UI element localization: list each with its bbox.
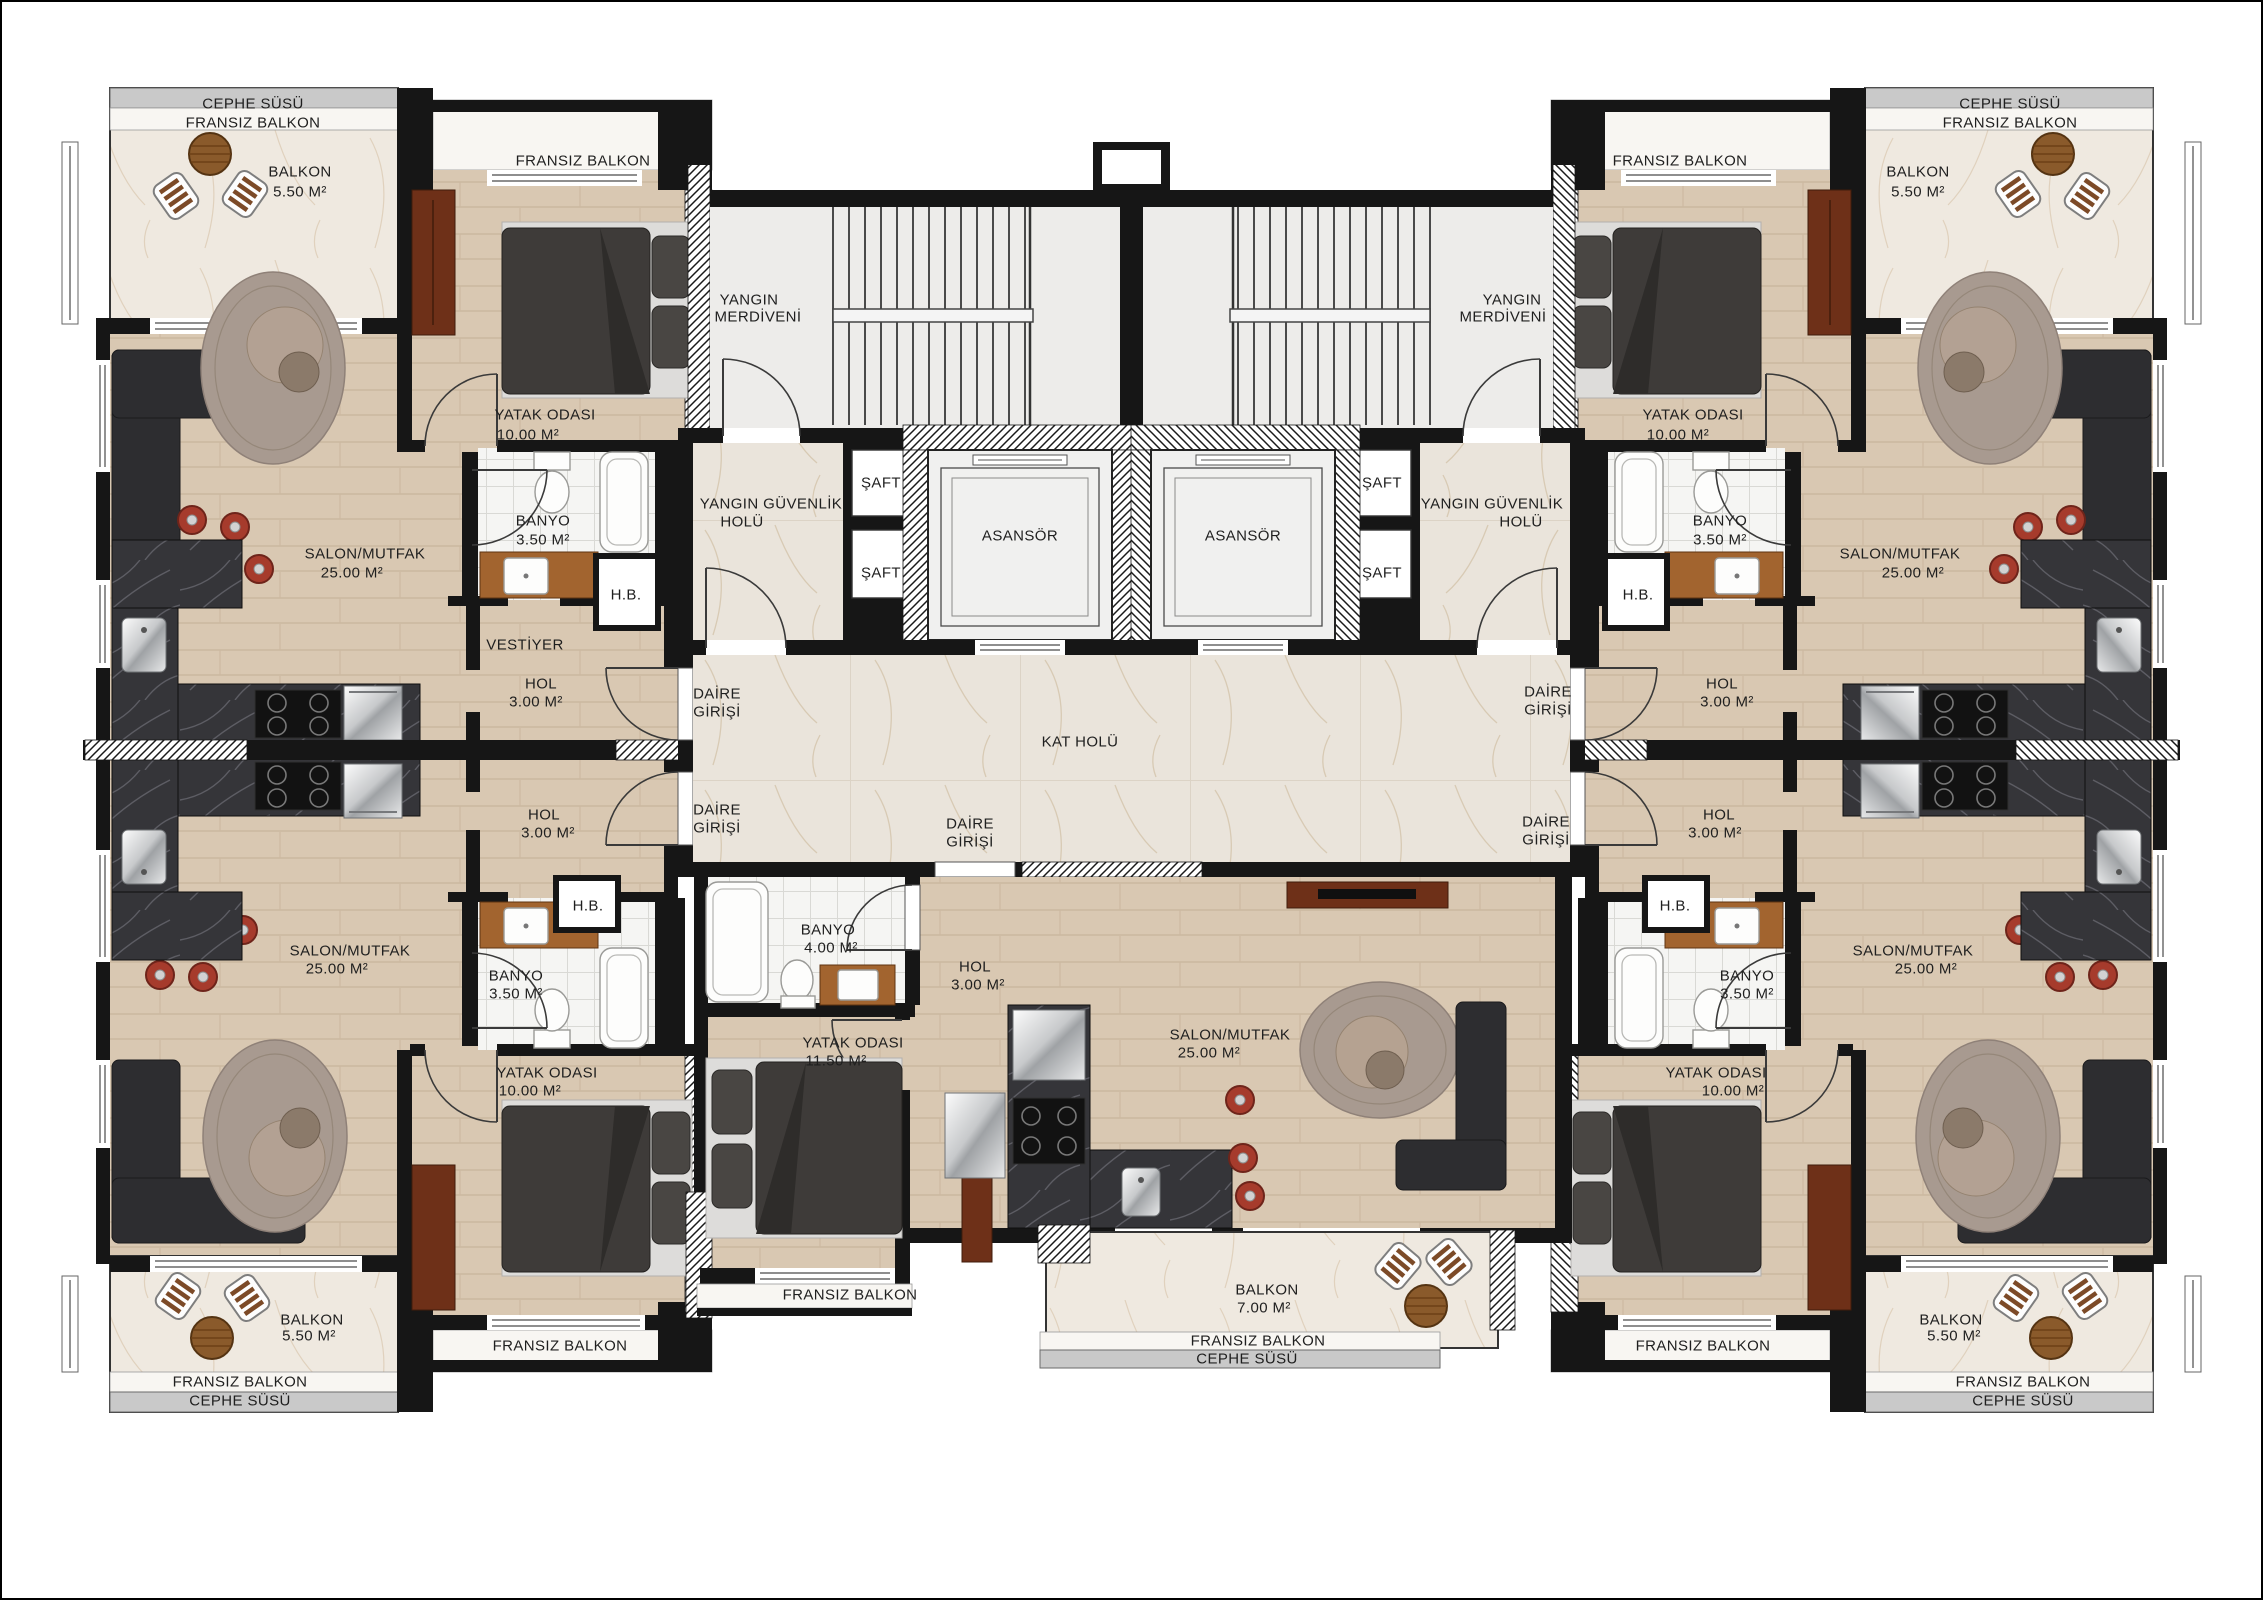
label-asansor-l: ASANSÖR	[982, 527, 1058, 545]
label-hol-tl: HOL	[525, 676, 557, 693]
label-hb-bl: H.B.	[573, 898, 604, 915]
party-wall	[83, 740, 708, 760]
balcony-table	[1405, 1285, 1447, 1327]
label-fransiz-br-bed: FRANSIZ BALKON	[1636, 1338, 1771, 1355]
red-stool	[146, 961, 174, 989]
label-cephe-c: CEPHE SÜSÜ	[1196, 1350, 1298, 1368]
label-hol-tr: HOL	[1706, 676, 1738, 693]
label-fransiz-tr-bed: FRANSIZ BALKON	[1613, 153, 1748, 170]
label-hol-tl-area: 3.00 M²	[509, 694, 563, 711]
red-stool	[178, 506, 206, 534]
label-salon-tr: SALON/MUTFAK	[1840, 546, 1961, 563]
label-guvenlik-l2: HOLÜ	[720, 513, 763, 531]
fridge	[1013, 1010, 1085, 1080]
label-banyo-bl-area: 3.50 M²	[489, 986, 543, 1003]
label-fransiz-tr: FRANSIZ BALKON	[1943, 115, 2078, 132]
bathtub	[600, 452, 648, 552]
floor-plan-page: CEPHE SÜSÜFRANSIZ BALKONBALKON5.50 M²FRA…	[0, 0, 2263, 1600]
stove	[255, 690, 341, 738]
label-saft-r1: ŞAFT	[1362, 475, 1402, 492]
label-banyo-c-area: 4.00 M²	[804, 940, 858, 957]
kitchen-sink	[122, 618, 166, 672]
label-daire-r1a: DAİRE	[1524, 683, 1572, 701]
label-hol-br-area: 3.00 M²	[1688, 825, 1742, 842]
label-hb-br: H.B.	[1660, 898, 1691, 915]
label-hol-bl: HOL	[528, 807, 560, 824]
label-salon-bl: SALON/MUTFAK	[290, 943, 411, 960]
label-fransiz-tl: FRANSIZ BALKON	[186, 115, 321, 132]
label-balkon-bl: BALKON	[280, 1312, 343, 1329]
floor-hall	[693, 655, 1570, 862]
label-fransiz-bl-bed: FRANSIZ BALKON	[493, 1338, 628, 1355]
dishwasher	[344, 764, 402, 818]
label-banyo-c: BANYO	[801, 922, 856, 939]
bed	[502, 1100, 692, 1276]
label-banyo-tl-area: 3.50 M²	[516, 532, 570, 549]
label-yatak-bl-area: 10.00 M²	[499, 1083, 561, 1100]
label-salon-br-area: 25.00 M²	[1895, 961, 1957, 978]
label-balkon-tl: BALKON	[268, 164, 331, 181]
center-bath-counter	[820, 965, 895, 1005]
center-hall-floor	[915, 877, 1558, 1005]
label-yatak-br: YATAK ODASI	[1665, 1065, 1766, 1082]
label-balkon-bl-area: 5.50 M²	[282, 1328, 336, 1345]
label-saft-l2: ŞAFT	[861, 565, 901, 582]
label-balkon-br-area: 5.50 M²	[1927, 1328, 1981, 1345]
bathtub	[600, 948, 648, 1048]
floor-hall-and-center-apartment	[678, 655, 1585, 1368]
red-stool	[1229, 1144, 1257, 1172]
label-salon-tl: SALON/MUTFAK	[305, 546, 426, 563]
label-daire-l1b: GİRİŞİ	[693, 703, 740, 721]
balcony-table	[189, 133, 231, 175]
stove	[1013, 1098, 1085, 1164]
label-balkon-c: BALKON	[1235, 1282, 1298, 1299]
dishwasher	[344, 686, 402, 740]
label-balkon-tl-area: 5.50 M²	[273, 184, 327, 201]
label-saft-r2: ŞAFT	[1362, 565, 1402, 582]
label-banyo-br: BANYO	[1720, 968, 1775, 985]
label-balkon-tr: BALKON	[1886, 164, 1949, 181]
label-daire-r1b: GİRİŞİ	[1524, 701, 1571, 719]
label-hol-bl-area: 3.00 M²	[521, 825, 575, 842]
label-daire-r2a: DAİRE	[1522, 813, 1570, 831]
stair-handrail	[833, 309, 1033, 322]
label-guvenlik-r2: HOLÜ	[1499, 513, 1542, 531]
label-daire-ca: DAİRE	[946, 815, 994, 833]
label-hol-tr-area: 3.00 M²	[1700, 694, 1754, 711]
bath-counter	[480, 552, 598, 598]
red-stool	[1236, 1182, 1264, 1210]
stove	[255, 762, 341, 810]
label-salon-bl-area: 25.00 M²	[306, 961, 368, 978]
label-daire-l1a: DAİRE	[693, 685, 741, 703]
center-bed	[706, 1058, 902, 1238]
label-saft-l1: ŞAFT	[861, 475, 901, 492]
center-toilet	[781, 960, 815, 1008]
label-salon-c-area: 25.00 M²	[1178, 1045, 1240, 1062]
label-cephe-tr: CEPHE SÜSÜ	[1959, 95, 2061, 113]
balcony-table	[191, 1317, 233, 1359]
bed	[502, 222, 692, 398]
label-cephe-bl: CEPHE SÜSÜ	[189, 1392, 291, 1410]
label-cephe-tl: CEPHE SÜSÜ	[202, 95, 304, 113]
label-balkon-c-area: 7.00 M²	[1237, 1300, 1291, 1317]
label-guvenlik-l1: YANGIN GÜVENLİK	[700, 495, 842, 513]
label-daire-cb: GİRİŞİ	[946, 833, 993, 851]
label-fransiz-br: FRANSIZ BALKON	[1956, 1374, 2091, 1391]
label-banyo-bl: BANYO	[489, 968, 544, 985]
apartment-top-left	[62, 88, 712, 760]
kitchen-sink	[1122, 1168, 1160, 1216]
label-hb-tl: H.B.	[611, 587, 642, 604]
label-daire-l2b: GİRİŞİ	[693, 819, 740, 837]
kitchen-sink	[122, 830, 166, 884]
label-yatak-bl: YATAK ODASI	[496, 1065, 597, 1082]
label-hol-c: HOL	[959, 959, 991, 976]
label-salon-tl-area: 25.00 M²	[321, 565, 383, 582]
label-salon-tr-area: 25.00 M²	[1882, 565, 1944, 582]
label-salon-br: SALON/MUTFAK	[1853, 943, 1974, 960]
label-daire-r2b: GİRİŞİ	[1522, 831, 1569, 849]
label-fransiz-c: FRANSIZ BALKON	[1191, 1333, 1326, 1350]
label-yatak-tl-area: 10.00 M²	[497, 427, 559, 444]
label-yangin-r1: YANGIN	[1483, 292, 1542, 309]
tv-unit	[1287, 882, 1448, 908]
center-bathtub	[706, 882, 768, 1002]
label-fransiz-bl: FRANSIZ BALKON	[173, 1374, 308, 1391]
label-fransiz-c-bed: FRANSIZ BALKON	[783, 1287, 918, 1304]
label-yangin-l2: MERDİVENİ	[715, 308, 802, 326]
apartment-bottom-right	[1551, 752, 2201, 1412]
label-balkon-tr-area: 5.50 M²	[1891, 184, 1945, 201]
label-yatak-tr: YATAK ODASI	[1642, 407, 1743, 424]
wardrobe	[412, 1165, 455, 1310]
apartment-bottom-left	[62, 752, 712, 1412]
label-yangin-r2: MERDİVENİ	[1460, 308, 1547, 326]
label-yatak-c: YATAK ODASI	[802, 1035, 903, 1052]
label-banyo-tl: BANYO	[516, 513, 571, 530]
label-salon-c: SALON/MUTFAK	[1170, 1027, 1291, 1044]
label-balkon-br: BALKON	[1919, 1312, 1982, 1329]
label-hb-tr: H.B.	[1623, 587, 1654, 604]
red-stool	[245, 555, 273, 583]
dishwasher	[945, 1093, 1005, 1178]
red-stool	[189, 963, 217, 991]
label-banyo-tr: BANYO	[1693, 513, 1748, 530]
label-yatak-tr-area: 10.00 M²	[1647, 427, 1709, 444]
label-hol-br: HOL	[1703, 807, 1735, 824]
label-yatak-tl: YATAK ODASI	[494, 407, 595, 424]
elevator	[928, 450, 1112, 640]
label-fransiz-tl-bed: FRANSIZ BALKON	[516, 153, 651, 170]
label-banyo-tr-area: 3.50 M²	[1693, 532, 1747, 549]
label-guvenlik-r1: YANGIN GÜVENLİK	[1421, 495, 1563, 513]
label-yatak-c-area: 11.50 M²	[805, 1053, 866, 1070]
label-banyo-br-area: 3.50 M²	[1720, 986, 1774, 1003]
label-asansor-r: ASANSÖR	[1205, 527, 1281, 545]
fire-safety-hall-floor	[693, 443, 848, 655]
label-yatak-br-area: 10.00 M²	[1702, 1083, 1764, 1100]
label-yangin-l1: YANGIN	[720, 292, 779, 309]
red-stool	[1226, 1086, 1254, 1114]
red-stool	[221, 513, 249, 541]
label-kat-holu: KAT HOLÜ	[1042, 733, 1119, 751]
label-cephe-br: CEPHE SÜSÜ	[1972, 1392, 2074, 1410]
label-daire-l2a: DAİRE	[693, 801, 741, 819]
label-hol-c-area: 3.00 M²	[951, 977, 1005, 994]
floor-plan-canvas: CEPHE SÜSÜFRANSIZ BALKONBALKON5.50 M²FRA…	[0, 0, 2263, 1600]
apartment-top-right	[1551, 88, 2201, 760]
label-vestiyer-tl: VESTİYER	[486, 636, 563, 654]
